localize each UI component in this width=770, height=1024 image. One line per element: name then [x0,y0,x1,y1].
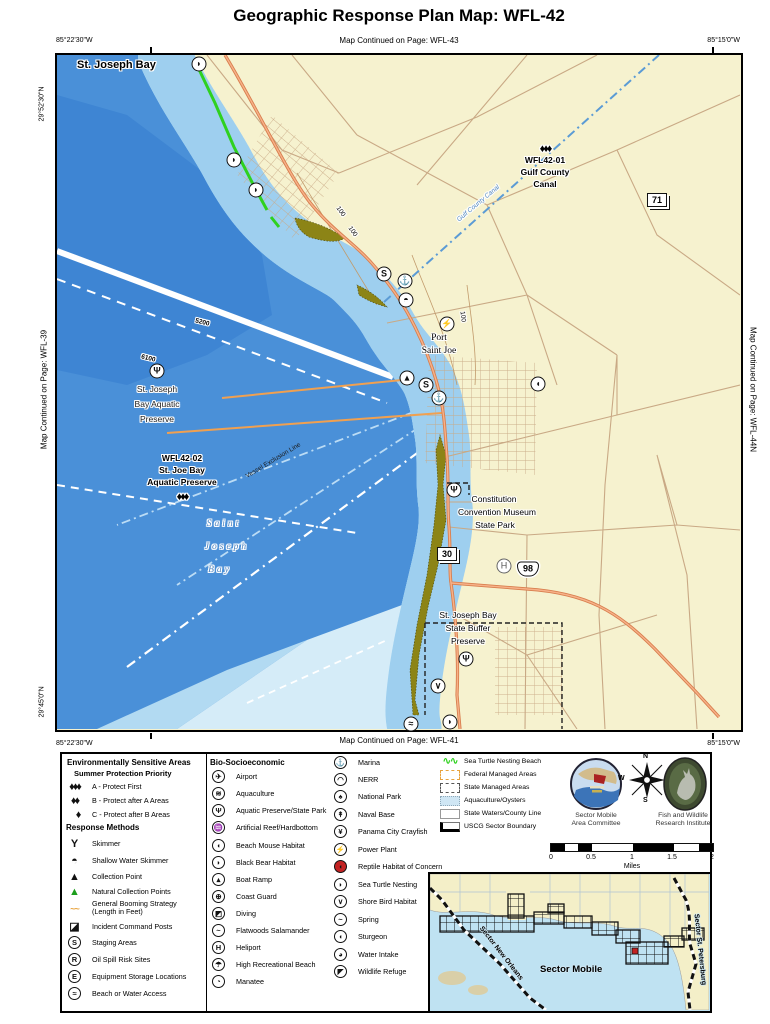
buffer-preserve-label-2: State Buffer [446,624,491,634]
legend-label: C - Protect after B Areas [92,810,170,819]
legend-label: NERR [358,775,378,784]
port-label-2: Saint Joe [422,346,457,357]
beach-access-icon: ≈ [404,717,419,732]
bay-name-label: St. Joseph Bay [77,59,156,72]
legend-label: Heliport [236,943,261,952]
site1-name-2: Canal [533,180,556,190]
legend-label: USCG Sector Boundary [464,823,536,830]
legend-label: Marina [358,758,380,767]
shallow-water-skimmer-icon: ◓ [68,854,81,867]
inset-sector-mobile-label: Sector Mobile [540,964,602,975]
legend-label: Spring [358,915,379,924]
logo1-caption: Sector MobileArea Committee [571,812,620,828]
legend-label: Beach or Water Access [92,989,166,998]
scale-tick-05: 0.5 [586,854,596,861]
boat-ramp-icon: ▴ [212,873,225,886]
legend-label: Reptile Habitat of Concern [358,862,442,871]
flatwoods-salamander-icon: ~ [212,924,225,937]
compass-n-label: N [643,753,648,760]
legend-label: Naval Base [358,810,395,819]
artificial-reef-icon: ♒ [212,821,225,834]
priority-diamonds: ♦♦♦ [177,491,188,504]
lat-bottom-left: 29°45'0"N [39,666,46,718]
legend-label: B - Protect after A Areas [92,796,169,805]
legend-label: Shallow Water Skimmer [92,856,168,865]
black-bear-habitat-icon: ◖ [531,377,546,392]
staging-area-icon: S [68,936,81,949]
page-title: Geographic Response Plan Map: WFL-42 [55,6,743,26]
site2-name-1: St. Joe Bay [159,466,205,476]
legend-label: Collection Point [92,872,142,881]
lon-top-right: 85°15'0"W [707,37,740,44]
beach-mouse-icon: ◖ [212,839,225,852]
legend-label: Equipment Storage Locations [92,972,186,981]
scale-tick-1: 1 [630,854,634,861]
incident-command-post-icon: ◪ [68,920,81,933]
airport-icon: ✈ [212,770,225,783]
legend-label: Shore Bird Habitat [358,897,417,906]
diving-icon: ◩ [212,907,225,920]
marina-icon: ⚓ [334,756,347,769]
compass-w-label: W [618,775,625,782]
marina-icon: ⚓ [398,274,413,289]
legend-label: Natural Collection Points [92,887,171,896]
legend-label: Skimmer [92,839,120,848]
sector-mobile-committee-logo [570,758,622,810]
legend-label: Oil Spill Risk Sites [92,955,150,964]
legend-label: Beach Mouse Habitat [236,841,305,850]
legend-label: Incident Command Posts [92,922,172,931]
legend-label: Aquatic Preserve/State Park [236,806,326,815]
legend-label: Aquaculture [236,789,274,798]
water-intake-icon: ◕ [334,948,347,961]
staging-area-icon: S [419,378,434,393]
scale-bar [550,843,714,852]
manatee-icon: ◔ [212,975,225,988]
legend-label: General Booming Strategy(Length in Feet) [92,900,177,917]
grp-map-page: Geographic Response Plan Map: WFL-42 85°… [0,0,770,1024]
legend-label: State Managed Areas [464,784,529,791]
sea-turtle-nesting-icon: ◗ [249,183,264,198]
oil-spill-risk-icon: R [68,953,81,966]
legend-label: High Recreational Beach [236,960,316,969]
scale-unit-label: Miles [624,863,640,870]
aquatic-preserve-label-3: Preserve [140,415,174,425]
state-managed-areas-swatch [440,783,460,793]
state-park-icon: Ψ [447,483,462,498]
buffer-preserve-label-1: St. Joseph Bay [439,611,496,621]
marina-icon: ⚓ [432,391,447,406]
inset-graphic [430,874,709,1010]
site1-name-1: Gulf County [521,168,570,178]
panama-city-crayfish-icon: ¥ [334,825,347,838]
logo2-caption: Fish and WildlifeResearch Institute [656,812,711,828]
sea-turtle-nesting-icon: ◗ [227,153,242,168]
route-71-shield: 71 [647,193,667,207]
contour-label: 100 [458,311,467,323]
esa-header: Environmentally Sensitive Areas [67,758,191,767]
sturgeon-icon: ◖ [334,930,347,943]
aquaculture-icon: ≋ [212,787,225,800]
port-label-1: Port [431,333,447,344]
spring-icon: ~ [334,913,347,926]
compass-s-label: S [643,797,648,804]
lon-bottom-right: 85°15'0"W [707,740,740,747]
bay-italic-label-3: Bay [208,565,232,576]
museum-label-2: Convention Museum [458,508,536,518]
legend-label: National Park [358,792,401,801]
national-park-icon: ♠ [334,790,347,803]
map-continued-top: Map Continued on Page: WFL-43 [55,36,743,45]
wildlife-refuge-icon: ◤ [334,965,347,978]
state-waters-county-line-swatch [440,809,460,819]
priority-c-icon: ♦ [72,808,85,821]
map-continued-left: Map Continued on Page: WFL-39 [40,310,49,470]
lat-top-left: 29°52'30"N [39,70,46,122]
museum-label-1: Constitution [472,495,517,505]
response-methods-header: Response Methods [66,823,139,832]
legend-label: Diving [236,909,256,918]
naval-base-icon: ↟ [334,808,347,821]
uscg-sector-boundary-swatch [440,822,460,832]
site1-id: WFL42-01 [525,156,565,166]
nerr-icon: ◠ [334,773,347,786]
legend-divider [206,754,207,1011]
black-bear-icon: ◗ [212,856,225,869]
legend-label: A - Protect First [92,782,142,791]
priority-a-icon: ♦♦♦ [68,780,81,793]
skimmer-icon: Y [68,837,81,850]
legend-label: Sea Turtle Nesting Beach [464,758,541,765]
aquatic-preserve-label-2: Bay Aquatic [135,400,180,410]
map-continued-bottom: Map Continued on Page: WFL-41 [55,736,743,745]
priority-b-icon: ♦♦ [68,794,81,807]
heliport-icon: H [212,941,225,954]
legend-label: Federal Managed Areas [464,771,537,778]
sea-turtle-nesting-icon: ◗ [443,715,458,730]
sea-turtle-nesting-icon: ◗ [192,57,207,72]
aquatic-preserve-icon: Ψ [212,804,225,817]
scale-tick-0: 0 [549,854,553,861]
bio-header: Bio-Socioeconomic [210,758,285,767]
legend-label: Sturgeon [358,932,387,941]
legend-label: Aquaculture/Oysters [464,797,526,804]
shallow-water-skimmer-icon: ◓ [399,293,414,308]
staging-area-icon: S [377,267,392,282]
collection-point-icon: ▲ [68,870,81,883]
legend-label: Boat Ramp [236,875,272,884]
legend-label: Staging Areas [92,938,137,947]
bay-italic-label-2: Joseph [205,542,249,553]
sector-overview-inset: Sector Mobile Sector New Orleans Sector … [428,872,712,1013]
legend-label: Artificial Reef/Hardbottom [236,823,318,832]
site2-name-2: Aquatic Preserve [147,478,216,488]
boat-ramp-icon: ▴ [400,371,415,386]
scale-tick-2: 2 [710,854,714,861]
state-park-icon: Ψ [459,652,474,667]
equipment-storage-icon: E [68,970,81,983]
legend-label: Sea Turtle Nesting [358,880,417,889]
sea-turtle-nesting-beach-line: ∿∿ [440,757,460,767]
tick [712,733,714,739]
aquatic-preserve-icon: Ψ [150,364,165,379]
legend-label: Black Bear Habitat [236,858,296,867]
federal-managed-areas-swatch [440,770,460,780]
reptile-habitat-icon: ◖ [334,860,347,873]
legend-label: Airport [236,772,257,781]
legend-label: State Waters/County Line [464,810,541,817]
tick [150,733,152,739]
heliport-icon: H [497,559,512,574]
legend-label: Flatwoods Salamander [236,926,310,935]
legend-label: Wildlife Refuge [358,967,406,976]
sea-turtle-nesting-icon: ◗ [334,878,347,891]
legend-label: Panama City Crayfish [358,827,428,836]
legend-label: Coast Guard [236,892,277,901]
map-frame: St. Joseph Bay ◗ ◗ ◗ ♦♦♦ WFL42-01 Gulf C… [55,53,743,732]
aquatic-preserve-label-1: St. Joseph [137,385,177,395]
natural-collection-point-icon: ▲ [68,885,81,898]
shore-bird-habitat-icon: ∨ [431,679,446,694]
fwri-logo [663,757,707,811]
shore-bird-icon: ∨ [334,895,347,908]
coast-guard-icon: ⊕ [212,890,225,903]
legend-label: Manatee [236,977,264,986]
power-plant-icon: ⚡ [440,317,455,332]
lon-bottom-left: 85°22'30"W [56,740,93,747]
legend-label: Power Plant [358,845,397,854]
buffer-preserve-label-3: Preserve [451,637,485,647]
site2-id: WFL42-02 [162,454,202,464]
beach-access-icon: ≈ [68,987,81,1000]
legend-label: Water Intake [358,950,398,959]
high-recreational-beach-icon: ☂ [212,958,225,971]
aquaculture-oysters-swatch [440,796,460,806]
power-plant-icon: ⚡ [334,843,347,856]
booming-strategy-icon: ~~ [68,902,81,915]
priority-diamonds: ♦♦♦ [540,143,551,156]
priority-header: Summer Protection Priority [74,769,172,778]
scale-tick-15: 1.5 [667,854,677,861]
compass-rose-icon [629,762,665,798]
museum-label-3: State Park [475,521,515,531]
map-continued-right: Map Continued on Page: WFL-44N [749,305,758,475]
bay-italic-label-1: Saint [207,519,242,530]
route-30-shield: 30 [437,547,457,561]
